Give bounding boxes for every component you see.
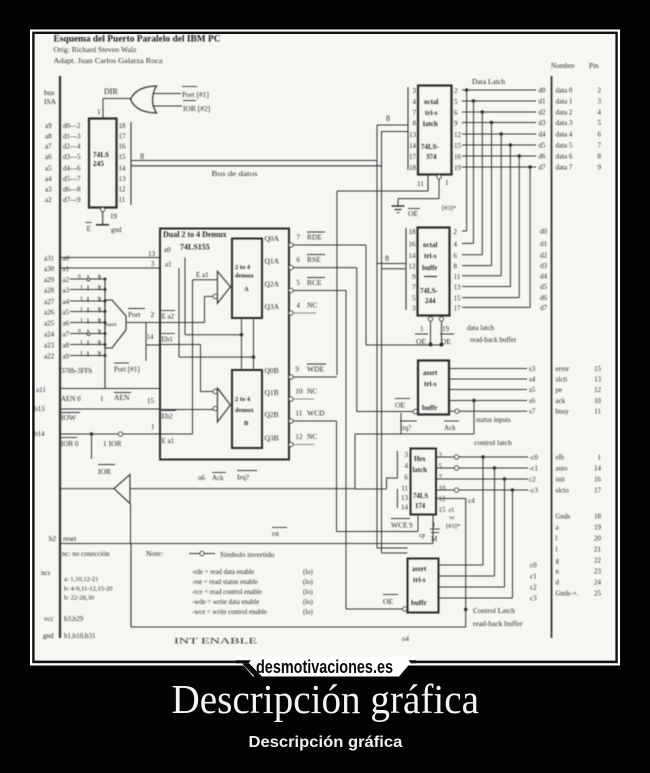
svg-text:o6: o6 <box>198 474 206 482</box>
svg-text:error: error <box>556 365 570 373</box>
svg-text:1: 1 <box>97 296 100 302</box>
svg-text:14: 14 <box>119 165 127 173</box>
svg-text:(lo): (lo) <box>303 579 313 586</box>
svg-text:3: 3 <box>412 304 416 312</box>
svg-text:d1: d1 <box>540 240 548 248</box>
svg-text:16: 16 <box>119 143 127 151</box>
svg-text:21: 21 <box>594 546 602 554</box>
svg-text:24: 24 <box>594 579 602 587</box>
svg-text:Q0A: Q0A <box>265 234 280 243</box>
svg-text:a1: a1 <box>165 261 172 269</box>
svg-text:Port: Port <box>128 310 141 319</box>
svg-text:a9: a9 <box>45 122 52 130</box>
svg-text:Q1A: Q1A <box>265 257 280 266</box>
svg-text:4: 4 <box>598 109 602 117</box>
svg-text:(lo): (lo) <box>303 599 313 606</box>
svg-text:d0: d0 <box>539 87 547 95</box>
svg-text:1 IOR: 1 IOR <box>103 439 122 448</box>
svg-text:read-back buffer: read-back buffer <box>473 619 523 628</box>
svg-text:1: 1 <box>97 285 100 291</box>
svg-text:7: 7 <box>439 474 443 482</box>
svg-text:ncs: ncs <box>41 569 51 577</box>
svg-text:WCE: WCE <box>391 521 408 530</box>
svg-text:12: 12 <box>454 131 462 139</box>
svg-text:16: 16 <box>409 240 417 248</box>
svg-text:1: 1 <box>97 274 100 280</box>
svg-text:8: 8 <box>598 153 602 161</box>
svg-text:8: 8 <box>385 254 389 263</box>
svg-text:c4: c4 <box>468 497 475 505</box>
svg-text:d3: d3 <box>540 262 548 270</box>
svg-text:OE: OE <box>416 337 426 346</box>
svg-text:378h-3FFh: 378h-3FFh <box>61 367 93 375</box>
svg-text:6: 6 <box>454 252 458 260</box>
svg-text:tri-s: tri-s <box>425 109 438 117</box>
svg-text:WDE: WDE <box>307 365 324 374</box>
svg-text:a4: a4 <box>63 298 70 306</box>
svg-text:2 to 4: 2 to 4 <box>235 264 251 271</box>
svg-text:a6: a6 <box>63 320 70 328</box>
svg-text:d6: d6 <box>540 294 548 302</box>
svg-text:Irq?: Irq? <box>237 473 250 482</box>
svg-text:Símbolo invertido: Símbolo invertido <box>220 550 275 559</box>
svg-text:s3: s3 <box>529 365 536 373</box>
svg-text:data 3: data 3 <box>556 119 573 127</box>
svg-text:12: 12 <box>119 186 127 194</box>
svg-text:d4: d4 <box>540 272 548 280</box>
svg-text:Esquema del Puerto Paralelo de: Esquema del Puerto Paralelo del IBM PC <box>54 34 221 44</box>
svg-text:3: 3 <box>405 451 409 459</box>
svg-text:15: 15 <box>454 295 462 303</box>
svg-text:18: 18 <box>119 122 127 130</box>
svg-text:[#3]*: [#3]* <box>446 523 460 530</box>
svg-text:0: 0 <box>78 329 81 335</box>
svg-text:status inputs: status inputs <box>476 416 511 424</box>
svg-text:74LS: 74LS <box>93 151 109 159</box>
svg-text:a24: a24 <box>44 331 55 339</box>
svg-text:a6: a6 <box>45 153 52 161</box>
svg-text:2: 2 <box>598 87 602 95</box>
svg-text:pe: pe <box>556 386 563 394</box>
svg-text:OE: OE <box>441 337 451 346</box>
svg-text:rst: rst <box>272 530 279 538</box>
svg-text:13: 13 <box>148 250 156 258</box>
svg-text:b: 4-9,11-12,15-20: b: 4-9,11-12,15-20 <box>64 586 113 593</box>
svg-text:d7: d7 <box>539 164 547 172</box>
svg-text:DIR: DIR <box>104 87 118 96</box>
svg-text:3: 3 <box>598 98 602 106</box>
svg-text:5: 5 <box>598 119 602 127</box>
svg-text:17: 17 <box>594 487 602 495</box>
svg-text:19: 19 <box>110 213 118 221</box>
svg-text:a8: a8 <box>45 133 52 141</box>
svg-text:-c3: -c3 <box>529 487 538 495</box>
svg-text:-rde = read data enable: -rde = read data enable <box>192 569 254 576</box>
svg-text:Gnds: Gnds <box>556 513 571 521</box>
svg-text:-rce = read control enable: -rce = read control enable <box>192 589 262 596</box>
svg-text:1: 1 <box>80 285 83 291</box>
svg-text:Orig: Richard Steven Walz: Orig: Richard Steven Walz <box>54 46 137 54</box>
svg-text:d5: d5 <box>539 142 547 150</box>
svg-text:-c0: -c0 <box>529 454 538 462</box>
svg-text:E a1: E a1 <box>162 437 175 445</box>
svg-text:l: l <box>556 546 558 554</box>
svg-text:6: 6 <box>405 474 409 482</box>
svg-text:sfb: sfb <box>556 454 565 462</box>
svg-text:data 7: data 7 <box>556 164 573 172</box>
svg-text:Adapt. Juan Carlos Galarza Ro: Adapt. Juan Carlos Galarza Roca <box>54 57 164 65</box>
svg-text:OE: OE <box>395 401 405 410</box>
svg-text:RDE: RDE <box>307 233 322 242</box>
svg-text:Q2A: Q2A <box>265 280 280 289</box>
svg-text:4: 4 <box>405 462 409 470</box>
svg-text:1: 1 <box>97 340 100 346</box>
svg-text:17: 17 <box>119 133 127 141</box>
svg-text:174: 174 <box>415 503 426 510</box>
svg-text:data 1: data 1 <box>556 98 573 106</box>
svg-text:E a1: E a1 <box>196 271 209 279</box>
svg-text:12: 12 <box>409 263 417 271</box>
svg-text:7: 7 <box>412 284 416 292</box>
svg-text:buffr: buffr <box>422 404 438 412</box>
svg-text:Descripción gráfica: Descripción gráfica <box>172 676 480 722</box>
svg-text:a26: a26 <box>44 309 55 317</box>
svg-text:Descripción gráfica: Descripción gráfica <box>249 734 403 751</box>
svg-text:a1: a1 <box>63 265 70 273</box>
svg-text:Data Latch: Data Latch <box>472 77 505 86</box>
svg-text:d5---7: d5---7 <box>63 175 81 183</box>
svg-text:74LS-: 74LS- <box>421 143 440 151</box>
svg-text:23: 23 <box>594 568 602 576</box>
svg-text:a3: a3 <box>45 186 52 194</box>
svg-text:M: M <box>431 535 438 543</box>
svg-text:Irq?: Irq? <box>400 424 411 432</box>
svg-text:Ack: Ack <box>212 474 224 482</box>
svg-text:18: 18 <box>594 513 602 521</box>
svg-text:cp: cp <box>419 532 425 539</box>
svg-text:0: 0 <box>78 274 81 280</box>
svg-text:IOR [#2]: IOR [#2] <box>183 104 210 113</box>
svg-text:8: 8 <box>386 114 390 123</box>
svg-text:13: 13 <box>401 494 409 502</box>
svg-text:14: 14 <box>409 252 417 260</box>
svg-text:15: 15 <box>147 397 155 405</box>
svg-text:9: 9 <box>454 120 458 128</box>
svg-text:8: 8 <box>413 120 417 128</box>
svg-text:Q3A: Q3A <box>265 302 280 311</box>
svg-text:-c1: -c1 <box>529 465 538 473</box>
svg-text:read-back buffer: read-back buffer <box>470 336 517 344</box>
svg-text:Pin: Pin <box>589 62 599 70</box>
svg-text:gnd: gnd <box>111 226 122 234</box>
svg-text:demux: demux <box>235 407 255 414</box>
svg-text:11: 11 <box>296 410 303 418</box>
svg-text:[#3]*: [#3]* <box>442 205 456 212</box>
svg-text:a31: a31 <box>44 255 55 263</box>
svg-text:6: 6 <box>598 131 602 139</box>
svg-text:nc: nc <box>450 515 456 521</box>
svg-text:Eb2: Eb2 <box>162 413 174 421</box>
svg-text:E: E <box>87 225 91 233</box>
svg-text:a4: a4 <box>45 175 52 183</box>
svg-text:assrt: assrt <box>423 369 438 377</box>
svg-text:e5: e5 <box>449 508 455 514</box>
svg-text:auto: auto <box>556 465 569 473</box>
svg-text:d0---2: d0---2 <box>63 122 81 130</box>
svg-text:data 2: data 2 <box>556 109 573 117</box>
svg-text:d2: d2 <box>540 251 548 259</box>
svg-text:5: 5 <box>412 295 416 303</box>
svg-text:13: 13 <box>409 131 417 139</box>
svg-text:16: 16 <box>454 153 462 161</box>
svg-text:11: 11 <box>594 408 601 416</box>
svg-text:bus: bus <box>44 88 55 97</box>
svg-text:b1,b10,b31: b1,b10,b31 <box>64 632 96 640</box>
svg-text:5: 5 <box>297 279 301 287</box>
svg-text:13: 13 <box>594 376 602 384</box>
svg-text:9: 9 <box>598 164 602 172</box>
svg-text:a23: a23 <box>44 342 55 350</box>
svg-text:-wde = write data enable: -wde = write data enable <box>192 599 259 606</box>
svg-text:17: 17 <box>454 304 462 312</box>
svg-text:a9: a9 <box>63 353 70 361</box>
svg-text:c2: c2 <box>530 584 537 592</box>
svg-text:RSE: RSE <box>307 255 321 264</box>
svg-text:5: 5 <box>439 463 443 471</box>
svg-text:13: 13 <box>119 175 127 183</box>
svg-text:2: 2 <box>454 87 458 95</box>
svg-text:4: 4 <box>413 98 417 106</box>
svg-text:a3: a3 <box>63 287 70 295</box>
svg-text:b14: b14 <box>34 430 45 438</box>
svg-text:1: 1 <box>80 340 83 346</box>
svg-text:data 0: data 0 <box>556 87 573 95</box>
svg-text:11: 11 <box>417 180 424 188</box>
svg-text:3: 3 <box>413 87 417 95</box>
svg-text:1: 1 <box>420 325 424 333</box>
svg-text:9: 9 <box>409 522 413 530</box>
svg-text:vcc: vcc <box>44 615 54 623</box>
svg-text:1: 1 <box>97 108 101 116</box>
svg-text:IOW: IOW <box>61 413 77 422</box>
svg-text:Nombre: Nombre <box>551 62 575 70</box>
svg-text:25: 25 <box>594 590 602 598</box>
svg-text:nand: nand <box>106 322 117 328</box>
svg-text:l: l <box>556 535 558 543</box>
svg-text:latch: latch <box>423 120 438 128</box>
svg-text:latch: latch <box>413 467 428 474</box>
svg-text:d7---9: d7---9 <box>63 196 81 204</box>
svg-text:d2: d2 <box>539 109 547 117</box>
svg-text:a: 1,10,12-21: a: 1,10,12-21 <box>64 576 98 583</box>
svg-text:a8: a8 <box>63 342 70 350</box>
svg-text:2 to 4: 2 to 4 <box>235 396 251 403</box>
svg-text:data 6: data 6 <box>556 153 573 161</box>
svg-text:2: 2 <box>454 228 458 236</box>
svg-text:1: 1 <box>97 329 100 335</box>
svg-text:A: A <box>244 286 249 293</box>
svg-text:a30: a30 <box>44 265 55 273</box>
svg-text:a2: a2 <box>45 196 52 204</box>
svg-text:(lo): (lo) <box>303 609 313 616</box>
svg-text:a0: a0 <box>63 255 70 263</box>
svg-text:(lo): (lo) <box>303 589 313 596</box>
svg-text:reset: reset <box>63 535 76 543</box>
svg-text:15: 15 <box>454 142 462 150</box>
svg-text:9: 9 <box>412 273 416 281</box>
svg-text:245: 245 <box>93 160 104 168</box>
svg-text:1: 1 <box>80 307 83 313</box>
svg-text:tri-s: tri-s <box>413 576 426 584</box>
svg-text:1: 1 <box>100 395 104 403</box>
svg-text:E a2: E a2 <box>162 313 175 321</box>
svg-text:3: 3 <box>151 260 155 268</box>
svg-text:s4: s4 <box>529 376 536 384</box>
svg-text:16: 16 <box>594 476 602 484</box>
svg-text:7: 7 <box>297 234 301 242</box>
svg-text:buffr: buffr <box>411 599 427 607</box>
svg-text:Q3B: Q3B <box>265 434 279 443</box>
svg-text:c0: c0 <box>530 562 537 570</box>
svg-text:11: 11 <box>401 485 408 493</box>
svg-text:374: 374 <box>426 153 437 161</box>
svg-text:1: 1 <box>97 307 100 313</box>
svg-text:o4: o4 <box>402 635 410 643</box>
svg-text:slcti: slcti <box>556 376 568 384</box>
svg-text:d6---8: d6---8 <box>63 186 81 194</box>
svg-text:B: B <box>244 420 249 427</box>
svg-text:n: n <box>556 568 560 576</box>
svg-text:d5: d5 <box>540 283 548 291</box>
svg-text:2: 2 <box>151 310 155 319</box>
svg-text:Q0B: Q0B <box>265 366 279 375</box>
svg-text:14: 14 <box>401 504 409 512</box>
svg-text:WCD: WCD <box>307 409 325 418</box>
svg-text:Eb1: Eb1 <box>162 336 174 344</box>
svg-text:4: 4 <box>297 302 301 310</box>
svg-text:13: 13 <box>454 284 462 292</box>
svg-text:10: 10 <box>296 388 304 396</box>
svg-text:Q2B: Q2B <box>265 410 279 419</box>
svg-text:11: 11 <box>454 273 461 281</box>
svg-text:(lo): (lo) <box>303 569 313 576</box>
svg-text:-wce = write control enable: -wce = write control enable <box>192 609 267 616</box>
svg-text:s6: s6 <box>529 397 536 405</box>
svg-text:d2---4: d2---4 <box>63 143 81 151</box>
svg-text:1: 1 <box>80 351 83 357</box>
svg-text:d4---6: d4---6 <box>63 165 81 173</box>
svg-text:Note:: Note: <box>146 549 163 558</box>
svg-text:a7: a7 <box>63 331 70 339</box>
svg-text:14: 14 <box>594 465 602 473</box>
svg-text:12: 12 <box>594 386 602 394</box>
svg-text:assrt: assrt <box>412 565 427 573</box>
svg-text:8: 8 <box>454 263 458 271</box>
svg-text:17: 17 <box>409 153 417 161</box>
svg-text:10: 10 <box>594 397 602 405</box>
svg-text:s5: s5 <box>529 386 536 394</box>
svg-text:Ack: Ack <box>444 424 456 432</box>
svg-text:7: 7 <box>598 142 602 150</box>
svg-text:d3: d3 <box>539 119 547 127</box>
svg-text:6: 6 <box>454 109 458 117</box>
svg-text:NC: NC <box>307 301 317 310</box>
svg-text:4: 4 <box>454 240 458 248</box>
svg-text:11: 11 <box>119 196 126 204</box>
svg-text:6: 6 <box>297 256 301 264</box>
svg-text:s7: s7 <box>529 408 536 416</box>
svg-text:d1: d1 <box>539 98 547 106</box>
svg-text:a11: a11 <box>36 386 46 394</box>
svg-text:init: init <box>556 476 565 484</box>
svg-text:9: 9 <box>296 366 300 374</box>
svg-text:a0: a0 <box>164 246 171 254</box>
svg-text:buffr: buffr <box>422 264 438 272</box>
svg-text:18: 18 <box>409 228 417 236</box>
svg-text:IOR: IOR <box>98 467 111 476</box>
svg-text:data 5: data 5 <box>556 142 573 150</box>
svg-text:Port [#1]: Port [#1] <box>114 366 140 374</box>
svg-text:gnd: gnd <box>43 632 54 640</box>
svg-text:19: 19 <box>442 325 450 333</box>
svg-text:-rse = read status enable: -rse = read status enable <box>192 579 258 586</box>
svg-text:data latch: data latch <box>467 324 495 332</box>
svg-text:b2: b2 <box>49 535 57 543</box>
svg-text:15: 15 <box>439 506 447 514</box>
svg-text:Dual 2 to 4 Demux: Dual 2 to 4 Demux <box>163 230 227 239</box>
svg-text:a22: a22 <box>44 353 55 361</box>
svg-text:Bus de datos: Bus de datos <box>212 169 258 178</box>
svg-text:tri-s: tri-s <box>424 380 437 388</box>
svg-text:14: 14 <box>409 142 417 150</box>
svg-text:d3---5: d3---5 <box>63 153 81 161</box>
svg-text:d7: d7 <box>540 304 548 312</box>
svg-text:c1: c1 <box>530 573 537 581</box>
svg-text:ack: ack <box>556 397 566 405</box>
svg-text:Port [#1]: Port [#1] <box>182 90 209 99</box>
svg-text:a7: a7 <box>45 143 52 151</box>
svg-text:22: 22 <box>594 557 602 565</box>
svg-text:1: 1 <box>445 179 449 187</box>
svg-text:14: 14 <box>147 333 155 341</box>
svg-text:8: 8 <box>140 152 144 161</box>
svg-text:RCE: RCE <box>307 278 322 287</box>
svg-text:tri-s: tri-s <box>424 252 437 260</box>
svg-text:c3: c3 <box>530 595 537 603</box>
svg-text:10: 10 <box>439 485 447 493</box>
svg-text:nc: no conección: nc: no conección <box>62 550 110 558</box>
svg-text:1: 1 <box>80 296 83 302</box>
svg-text:a5: a5 <box>45 165 52 173</box>
svg-text:d6: d6 <box>539 153 547 161</box>
svg-text:a27: a27 <box>44 298 55 306</box>
svg-text:NC: NC <box>307 432 317 441</box>
svg-text:5: 5 <box>454 98 458 106</box>
svg-text:d4: d4 <box>539 131 547 139</box>
svg-text:1: 1 <box>80 318 83 324</box>
svg-text:b3,b29: b3,b29 <box>64 615 84 623</box>
svg-text:d1---3: d1---3 <box>63 133 81 141</box>
svg-text:data 4: data 4 <box>556 131 573 139</box>
svg-text:12: 12 <box>296 433 304 441</box>
svg-text:AEN: AEN <box>114 393 130 402</box>
svg-text:ISA: ISA <box>44 97 57 106</box>
svg-text:Q1B: Q1B <box>265 388 279 397</box>
svg-text:2: 2 <box>439 452 443 460</box>
svg-text:OE: OE <box>408 209 418 218</box>
svg-text:244: 244 <box>425 297 436 305</box>
svg-text:INT ENABLE: INT ENABLE <box>174 636 257 646</box>
